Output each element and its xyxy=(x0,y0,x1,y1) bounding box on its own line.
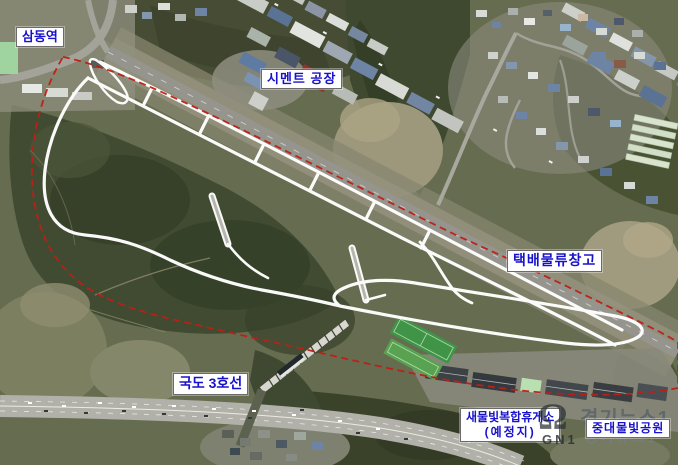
rest-area-name: 새물빛복합휴게소 xyxy=(466,410,554,425)
label-mulbit-park: 중대물빛공원 xyxy=(586,419,670,438)
label-national-route-3: 국도 3호선 xyxy=(173,373,248,395)
label-samdong-station: 삼동역 xyxy=(16,27,64,47)
label-parcel-logistics-warehouse: 택배물류창고 xyxy=(507,250,602,272)
news-map-figure: 삼동역 시멘트 공장 택배물류창고 국도 3호선 새물빛복합휴게소 (예정지) … xyxy=(0,0,678,465)
label-rest-area-planned-site: 새물빛복합휴게소 (예정지) xyxy=(460,408,560,442)
rest-area-status: (예정지) xyxy=(466,425,554,440)
label-cement-factory: 시멘트 공장 xyxy=(261,69,342,89)
